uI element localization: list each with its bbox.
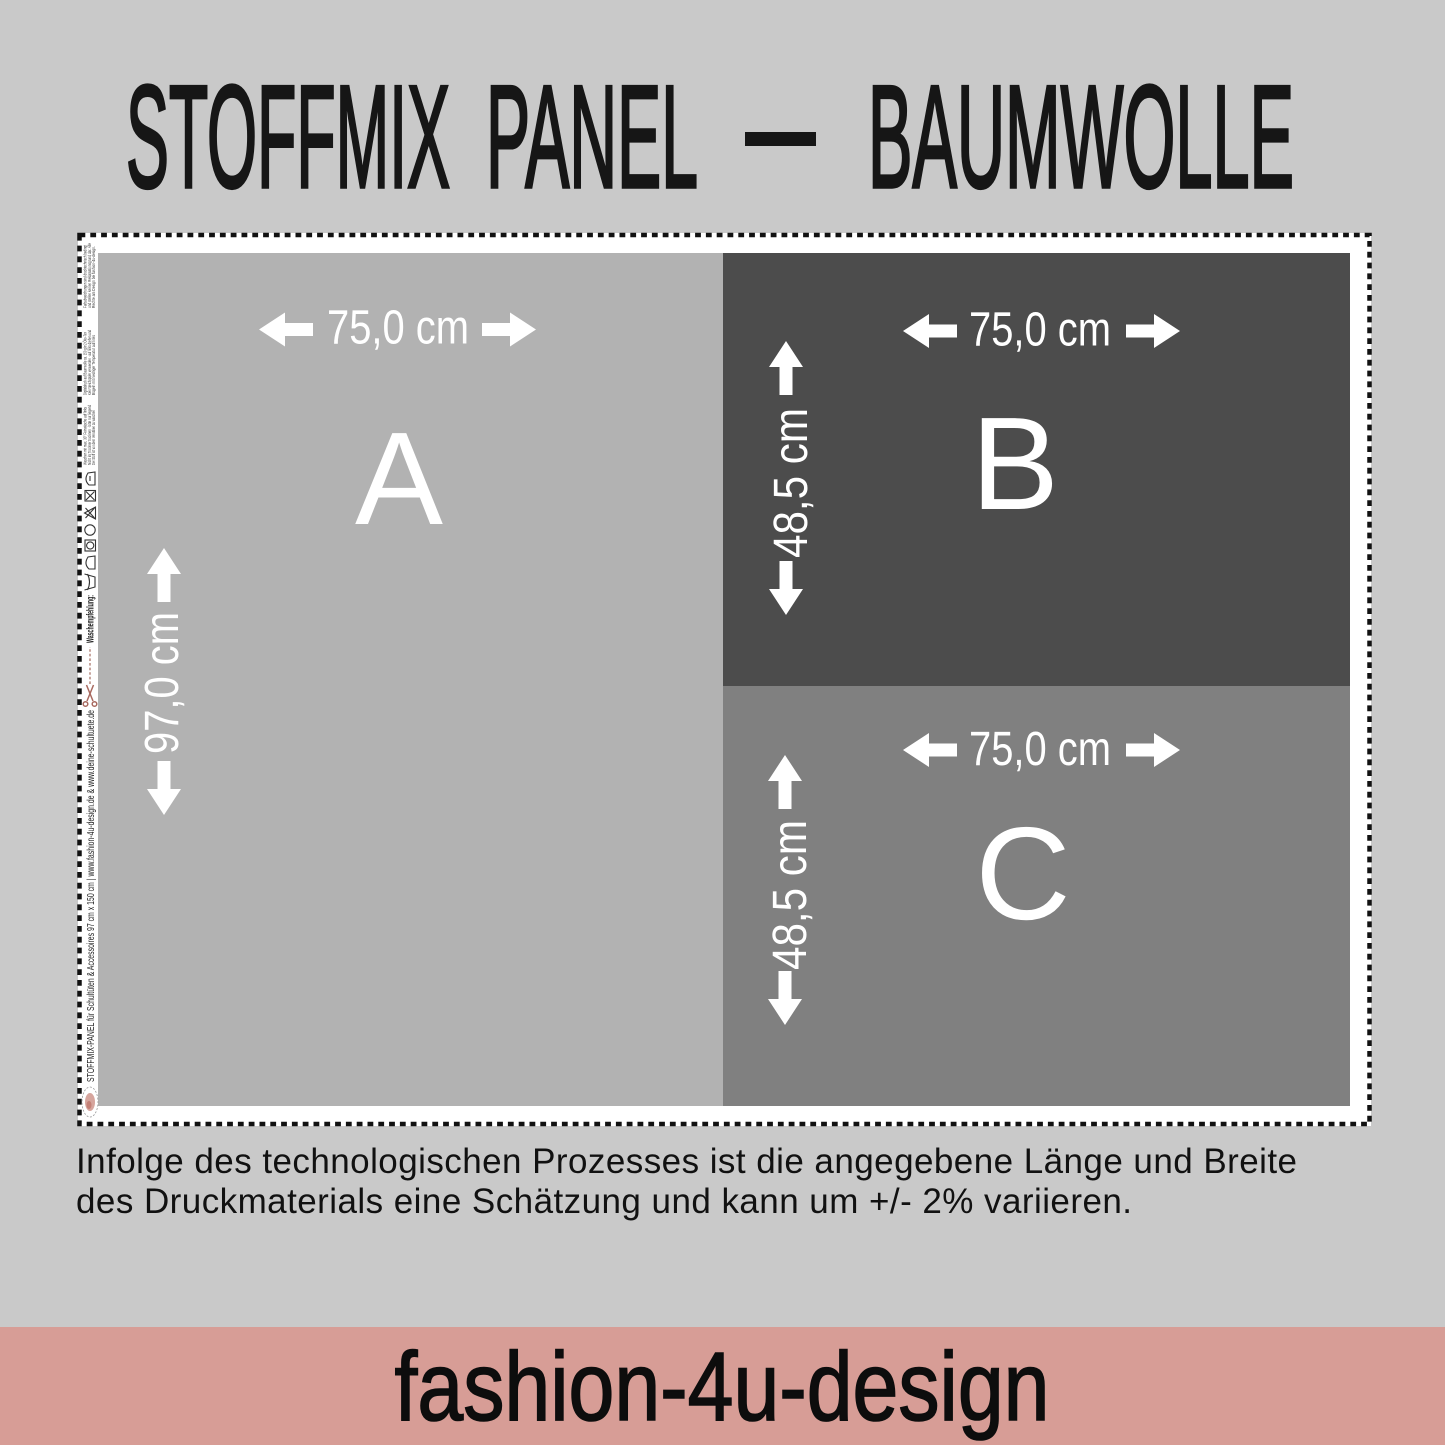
svg-text:75,0 cm: 75,0 cm — [969, 304, 1111, 357]
svg-text:C: C — [975, 800, 1070, 947]
svg-text:Der Stoff ist vor dem Vernähen: Der Stoff ist vor dem Vernähen zu wasche… — [91, 410, 96, 465]
svg-text:PANEL: PANEL — [486, 55, 698, 218]
svg-text:fashion-4u-design: fashion-4u-design — [395, 1332, 1050, 1441]
svg-text:STOFFMIX-PANEL für Schultüten: STOFFMIX-PANEL für Schultüten & Accessoi… — [85, 710, 97, 1082]
svg-text:Infolge des technologischen Pr: Infolge des technologischen Prozesses is… — [76, 1142, 1297, 1181]
svg-text:Bügeln mit niedriger Temperatu: Bügeln mit niedriger Temperatur auf link… — [91, 335, 96, 395]
svg-text:B: B — [971, 390, 1059, 537]
svg-text:BAUMWOLLE: BAUMWOLLE — [868, 55, 1294, 218]
svg-text:des Druckmaterials eine Schätz: des Druckmaterials eine Schätzung und ka… — [76, 1182, 1132, 1221]
svg-text:Rechte am Design bei fashion-4: Rechte am Design bei fashion-4u-design. — [91, 246, 96, 308]
svg-text:97,0 cm: 97,0 cm — [136, 612, 189, 754]
svg-text:48,5 cm: 48,5 cm — [765, 408, 818, 558]
svg-text:48,5 cm: 48,5 cm — [764, 820, 817, 970]
svg-text:75,0 cm: 75,0 cm — [969, 723, 1111, 776]
svg-text:STOFFMIX: STOFFMIX — [126, 55, 450, 218]
svg-text:Waschempfehlung:: Waschempfehlung: — [86, 595, 97, 643]
svg-text:75,0 cm: 75,0 cm — [327, 302, 469, 355]
svg-text:A: A — [355, 405, 443, 552]
